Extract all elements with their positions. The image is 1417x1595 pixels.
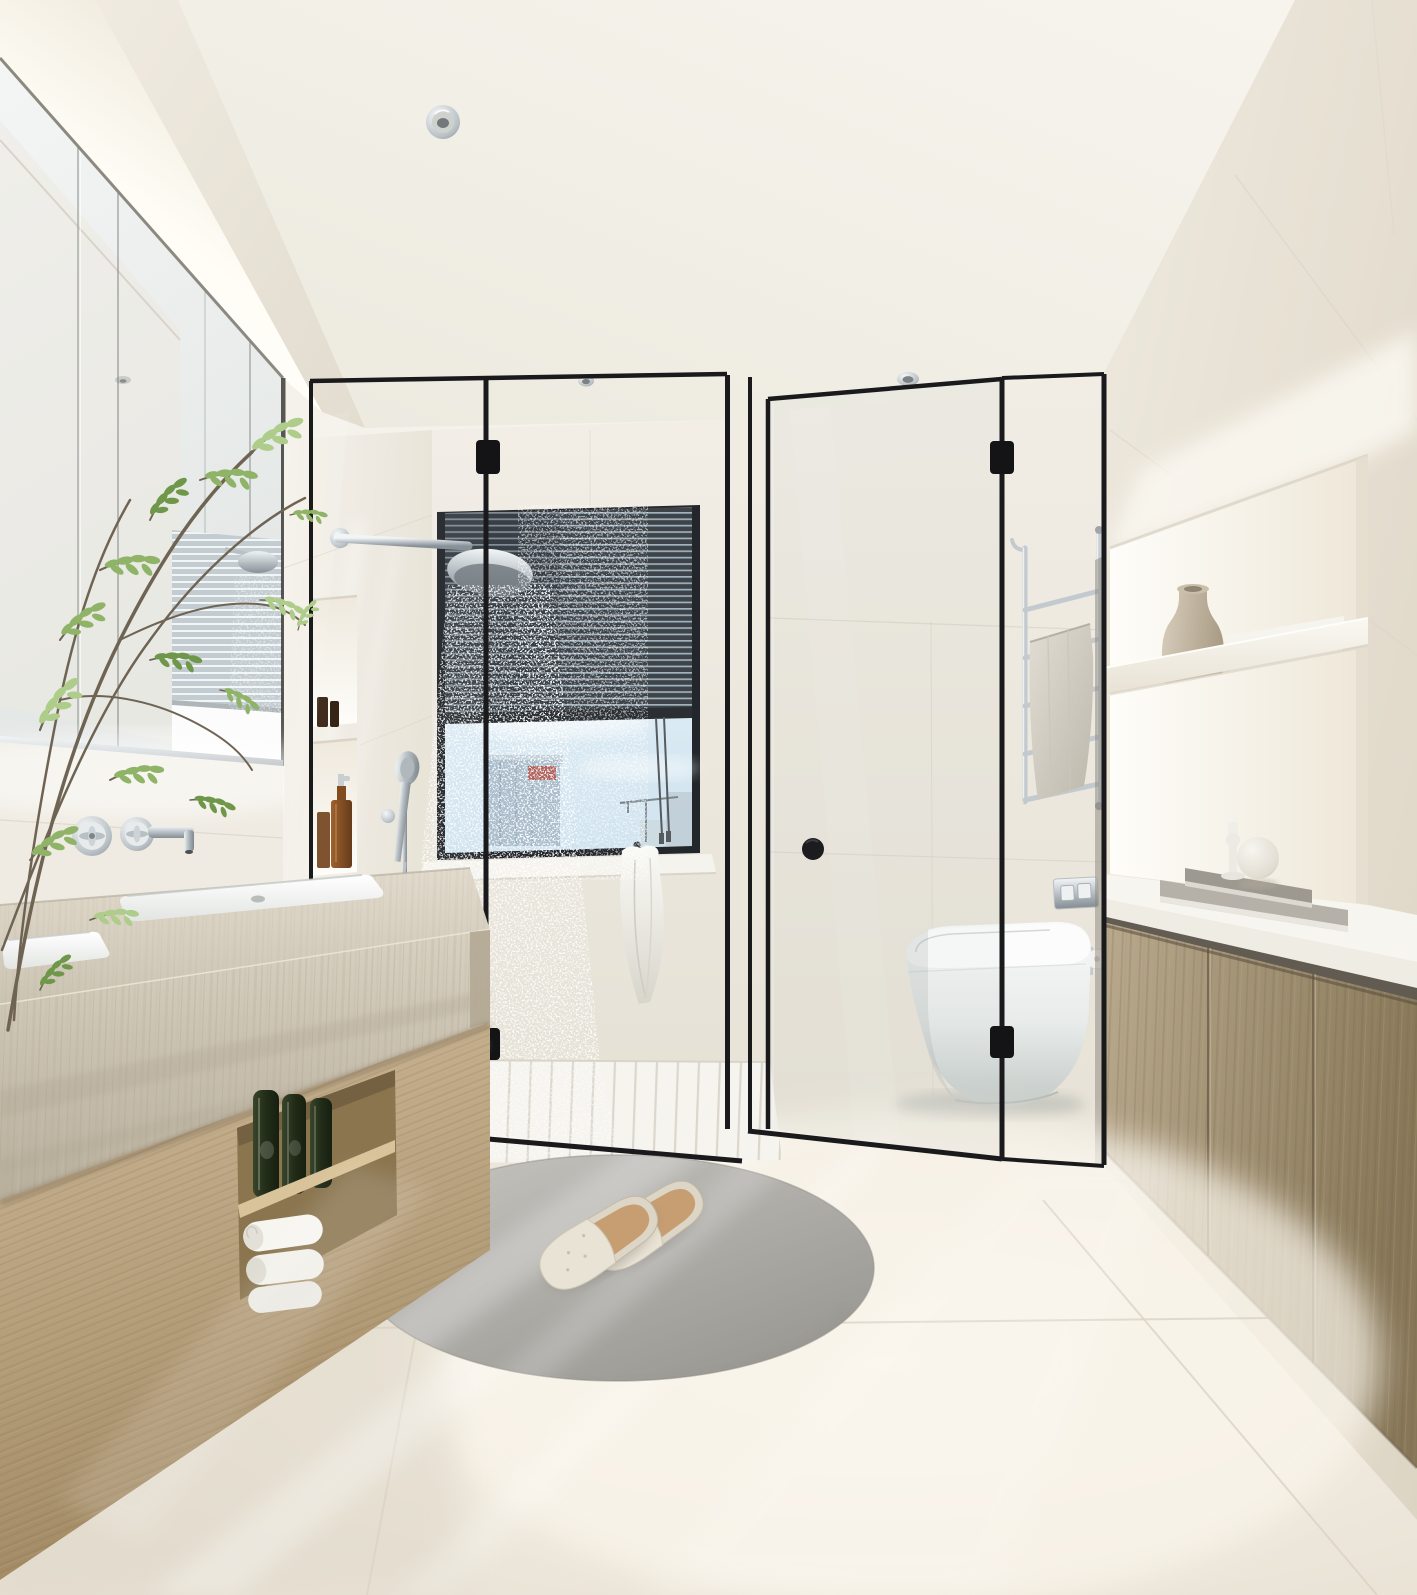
glass-clamp [476, 440, 500, 474]
recessed-downlight-small [897, 372, 919, 386]
door-hinge [990, 441, 1014, 474]
door-knob [802, 838, 824, 860]
door-hinge [990, 1026, 1014, 1058]
scene-canvas [0, 0, 1417, 1595]
sink-drain [251, 896, 265, 903]
ladder-towel [1029, 624, 1093, 800]
flush-plate [1053, 877, 1099, 909]
bathroom-render [0, 0, 1417, 1595]
decor-sphere [1237, 837, 1279, 889]
recessed-downlight [426, 105, 460, 139]
shower-mist [518, 505, 648, 880]
